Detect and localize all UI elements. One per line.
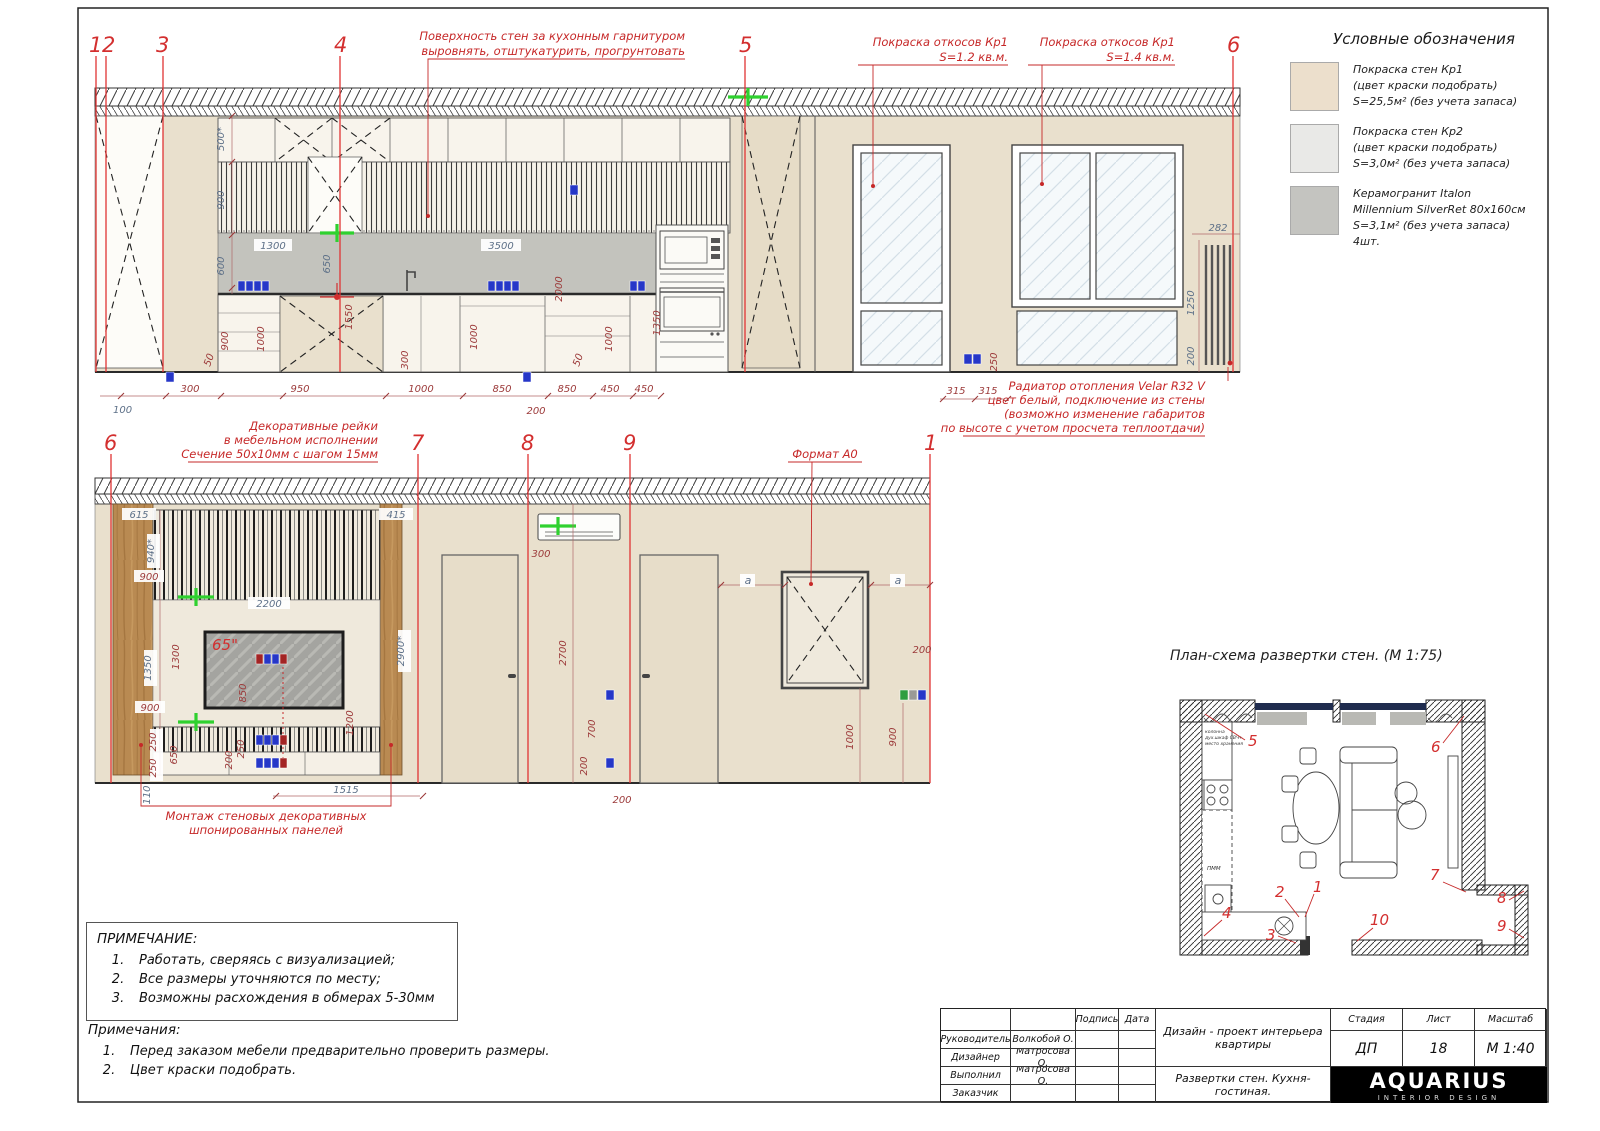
logo-text: AQUARIUS — [1370, 1069, 1509, 1093]
svg-text:цвет белый, подключение из сте: цвет белый, подключение из стены — [988, 393, 1205, 407]
svg-text:7: 7 — [1430, 866, 1440, 884]
dim-label: 850 — [238, 683, 249, 702]
dim-label: 2900* — [396, 636, 407, 666]
dim-label: a — [745, 574, 752, 587]
svg-text:Радиатор отопления Velar R32 V: Радиатор отопления Velar R32 V — [1009, 379, 1207, 393]
notes-sub-title: Примечания: — [88, 1022, 608, 1038]
tb-name: Матросова О. — [1011, 1067, 1076, 1085]
door-left — [442, 555, 518, 783]
tb-empty — [1119, 1085, 1156, 1103]
svg-text:4: 4 — [1222, 904, 1232, 922]
poster-frame — [782, 572, 868, 688]
legend-item-kp1: Покраска стен Кр1 (цвет краски подобрать… — [1290, 62, 1558, 111]
swatch-kp1 — [1290, 62, 1339, 111]
dim-label: 2200 — [256, 599, 281, 610]
dim-label: 1515 — [333, 785, 358, 796]
elevation-top: 1 2 3 4 5 6 Поверхность стен за кухонным… — [89, 29, 1240, 436]
svg-text:Покраска откосов Кр1: Покраска откосов Кр1 — [1040, 35, 1175, 49]
svg-text:шпонированных панелей: шпонированных панелей — [189, 823, 343, 837]
legend: Условные обозначения Покраска стен Кр1 (… — [1290, 30, 1558, 263]
svg-text:3: 3 — [1266, 926, 1276, 944]
tb-name — [1011, 1085, 1076, 1103]
tb-name: Волкобой О. — [1011, 1031, 1076, 1049]
elevation-bottom: 65" 6 7 8 — [95, 419, 937, 837]
dim-label: 300 — [400, 350, 411, 369]
dim-label: 1350 — [143, 655, 154, 680]
dim-label: 650 — [322, 254, 333, 273]
dim-label: 900 — [888, 727, 899, 746]
legend-title: Условные обозначения — [1290, 30, 1558, 48]
svg-text:Сечение 50х10мм с шагом 15мм: Сечение 50х10мм с шагом 15мм — [181, 447, 378, 461]
dim-label: 950 — [290, 384, 309, 395]
tv-upper-slats — [153, 510, 380, 600]
marker-label: 1 — [89, 33, 102, 57]
dim-label: a — [895, 574, 902, 587]
dim-label: 850 — [492, 384, 511, 395]
drawing-sheet: { "colors":{"beige":"#e9e0cd","kp2":"#e9… — [0, 0, 1600, 1131]
plan-kitchen-note: место хранения — [1205, 742, 1243, 747]
legend-line: S=3,1м² (без учета запаса) — [1353, 218, 1526, 234]
svg-text:по высоте с учетом просчета те: по высоте с учетом просчета теплоотдачи) — [941, 421, 1205, 435]
notes-box-title: ПРИМЕЧАНИЕ: — [97, 931, 447, 947]
upper-slat-band — [218, 162, 730, 233]
tb-empty — [1011, 1009, 1076, 1031]
plan-title: План-схема развертки стен. (М 1:75) — [1170, 648, 1470, 664]
marker-label: 8 — [521, 431, 534, 455]
legend-item-ceramic: Керамогранит Italon Millennium SilverRet… — [1290, 186, 1558, 250]
dim-label: 110 — [142, 785, 153, 804]
tb-date-header: Дата — [1119, 1009, 1156, 1031]
marker-label: 7 — [411, 431, 425, 455]
dim-label: 1000 — [408, 384, 433, 395]
dim-label: 315 — [946, 386, 965, 397]
tb-role: Выполнил — [941, 1067, 1011, 1085]
dim-label: 450 — [634, 384, 653, 395]
tb-role: Руководитель — [941, 1031, 1011, 1049]
dim-label: 450 — [600, 384, 619, 395]
note-item: 2.Все размеры уточняются по месту; — [97, 972, 447, 987]
dim-label: 1200 — [345, 710, 356, 735]
dim-label: 900 — [220, 331, 231, 350]
svg-text:6: 6 — [1431, 738, 1441, 756]
tb-sign-header: Подпись — [1076, 1009, 1119, 1031]
dim-label: 200 — [912, 645, 931, 656]
dim-label: 1300 — [171, 644, 182, 669]
legend-line: Покраска стен Кр1 — [1353, 62, 1517, 78]
dim-label: 650 — [169, 745, 180, 764]
dim-label: 200 — [526, 406, 545, 417]
notes-box: ПРИМЕЧАНИЕ: 1.Работать, сверяясь с визуа… — [86, 922, 458, 1021]
ceiling-hatch — [95, 88, 1240, 106]
logo-subtext: INTERIOR DESIGN — [1378, 1094, 1501, 1102]
tb-doc-title: Развертки стен. Кухня-гостиная. — [1156, 1067, 1331, 1103]
tb-empty — [941, 1009, 1011, 1031]
dim-label: 315 — [978, 386, 997, 397]
dim-label: 1000 — [845, 724, 856, 749]
svg-text:9: 9 — [1497, 917, 1507, 935]
tb-role: Заказчик — [941, 1085, 1011, 1103]
svg-text:Покраска откосов Кр1: Покраска откосов Кр1 — [873, 35, 1008, 49]
tb-empty — [1076, 1031, 1119, 1049]
plan-window — [1255, 703, 1333, 710]
title-block: Подпись Дата Дизайн - проект интерьеракв… — [940, 1008, 1546, 1102]
dim-label: 250 — [236, 739, 247, 758]
tb-empty — [1119, 1031, 1156, 1049]
dim-label: 250 — [148, 732, 159, 751]
svg-text:S=1.2 кв.м.: S=1.2 кв.м. — [939, 50, 1008, 64]
marker-label: 5 — [739, 33, 752, 57]
dim-label: 1350 — [652, 310, 663, 335]
legend-line: 4шт. — [1353, 234, 1526, 250]
swatch-kp2 — [1290, 124, 1339, 173]
kitchen-base-cabinets — [218, 294, 658, 372]
marker-label: 3 — [156, 33, 169, 57]
note-item: 2.Цвет краски подобрать. — [88, 1063, 608, 1078]
tb-role: Дизайнер — [941, 1049, 1011, 1067]
dim-label: 300 — [180, 384, 199, 395]
dim-label: 200 — [1186, 346, 1197, 365]
dim-label: 200 — [612, 795, 631, 806]
note-item: 1.Работать, сверяясь с визуализацией; — [97, 953, 447, 968]
dim-label: 700 — [587, 719, 598, 738]
plan-furniture — [1202, 722, 1458, 940]
legend-item-kp2: Покраска стен Кр2 (цвет краски подобрать… — [1290, 124, 1558, 173]
dim-label: 200 — [579, 756, 590, 775]
dim-label: 1250 — [1186, 290, 1197, 315]
dim-label: 1000 — [604, 326, 615, 351]
tb-list-header: Лист — [1403, 1009, 1475, 1031]
dim-label: 1550 — [344, 304, 355, 329]
tb-empty — [1119, 1049, 1156, 1067]
dim-label: 600 — [216, 256, 227, 275]
note-item: 3.Возможны расхождения в обмерах 5-30мм — [97, 991, 447, 1006]
svg-text:10: 10 — [1370, 911, 1389, 929]
tb-stage-header: Стадия — [1331, 1009, 1403, 1031]
legend-line: (цвет краски подобрать) — [1353, 78, 1517, 94]
tb-scale-value: М 1:40 — [1475, 1031, 1547, 1067]
legend-line: Покраска стен Кр2 — [1353, 124, 1510, 140]
plan-window — [1340, 703, 1426, 710]
dim-label: 900 — [216, 190, 227, 209]
marker-label: 1 — [924, 431, 937, 455]
dim-label: 250 — [148, 758, 159, 777]
svg-text:выровнять, отштукатурить, прог: выровнять, отштукатурить, прогрунтовать — [421, 44, 685, 58]
floor-plan: колонна дух.шкаф СВЧ+ место хранения ПММ… — [1180, 700, 1528, 955]
annotation-rails: Декоративные рейки в мебельном исполнени… — [181, 419, 378, 462]
dim-label: 500* — [216, 127, 227, 151]
legend-line: Millennium SilverRet 80x160см — [1353, 202, 1526, 218]
appliance-column — [656, 225, 728, 372]
window — [1012, 145, 1183, 365]
dim-label: 2000 — [554, 276, 565, 301]
dim-label: 1300 — [260, 241, 285, 252]
svg-text:5: 5 — [1248, 732, 1258, 750]
tb-stage-value: ДП — [1331, 1031, 1403, 1067]
annotation-radiator: Радиатор отопления Velar R32 V цвет белы… — [941, 367, 1228, 436]
door-right — [640, 555, 718, 783]
dim-label: 282 — [1208, 223, 1227, 234]
dim-label: 940* — [146, 539, 157, 563]
sofa — [1340, 747, 1397, 878]
dim-label: 900 — [140, 703, 159, 714]
svg-text:Поверхность стен за кухонным г: Поверхность стен за кухонным гарнитуром — [419, 29, 685, 43]
dim-label: 415 — [386, 510, 405, 521]
dim-label: 1000 — [256, 326, 267, 351]
legend-line: S=25,5м² (без учета запаса) — [1353, 94, 1517, 110]
legend-line: (цвет краски подобрать) — [1353, 140, 1510, 156]
legend-line: S=3,0м² (без учета запаса) — [1353, 156, 1510, 172]
plan-kitchen-note: колонна — [1205, 730, 1225, 735]
tb-empty — [1076, 1085, 1119, 1103]
note-item: 1.Перед заказом мебели предварительно пр… — [88, 1044, 608, 1059]
tv-size-label: 65" — [212, 636, 238, 654]
marker-label: 6 — [104, 431, 117, 455]
svg-text:S=1.4 кв.м.: S=1.4 кв.м. — [1106, 50, 1175, 64]
tb-project: Дизайн - проект интерьераквартиры — [1156, 1009, 1331, 1067]
plan-tv-console — [1448, 756, 1458, 868]
tb-list-value: 18 — [1403, 1031, 1475, 1067]
tb-empty — [1119, 1067, 1156, 1085]
dim-label: 615 — [129, 510, 148, 521]
dim-label: 200 — [224, 750, 235, 769]
marker-label: 4 — [334, 33, 347, 57]
tb-empty — [1076, 1067, 1119, 1085]
svg-text:8: 8 — [1497, 889, 1507, 907]
ac-unit — [538, 514, 620, 540]
svg-text:Декоративные рейки: Декоративные рейки — [248, 419, 378, 433]
dim-label: 1000 — [469, 324, 480, 349]
dim-label: 2700 — [558, 640, 569, 665]
plan-pmm-label: ПММ — [1207, 866, 1221, 872]
marker-label: 6 — [1227, 33, 1240, 57]
balcony-door — [853, 145, 950, 372]
dim-label: 300 — [531, 549, 550, 560]
dim-label: 3500 — [488, 241, 513, 252]
dim-label: 850 — [557, 384, 576, 395]
tb-scale-header: Масштаб — [1475, 1009, 1547, 1031]
marker-label: 2 — [102, 33, 115, 57]
legend-line: Керамогранит Italon — [1353, 186, 1526, 202]
dim-label: 900 — [139, 572, 158, 583]
swatch-ceramic — [1290, 186, 1339, 235]
aquarius-logo: AQUARIUS INTERIOR DESIGN — [1331, 1067, 1547, 1103]
svg-text:(возможно изменение габаритов: (возможно изменение габаритов — [1004, 407, 1205, 421]
svg-text:1: 1 — [1313, 878, 1323, 896]
tb-empty — [1076, 1049, 1119, 1067]
svg-text:Формат А0: Формат А0 — [792, 447, 858, 461]
marker-label: 9 — [623, 431, 636, 455]
svg-text:2: 2 — [1275, 883, 1285, 901]
dim-label: 100 — [113, 405, 132, 416]
svg-text:Монтаж стеновых декоративных: Монтаж стеновых декоративных — [166, 809, 367, 823]
dining-table — [1293, 772, 1339, 844]
svg-text:в мебельном исполнении: в мебельном исполнении — [224, 433, 379, 447]
tb-name: Матросова О. — [1011, 1049, 1076, 1067]
kitchen-upper-cabinets — [218, 118, 730, 233]
plan-kitchen-note: дух.шкаф СВЧ+ — [1204, 735, 1243, 741]
dim-label: 250 — [989, 352, 1000, 371]
notes-secondary: Примечания: 1.Перед заказом мебели предв… — [88, 1022, 608, 1082]
